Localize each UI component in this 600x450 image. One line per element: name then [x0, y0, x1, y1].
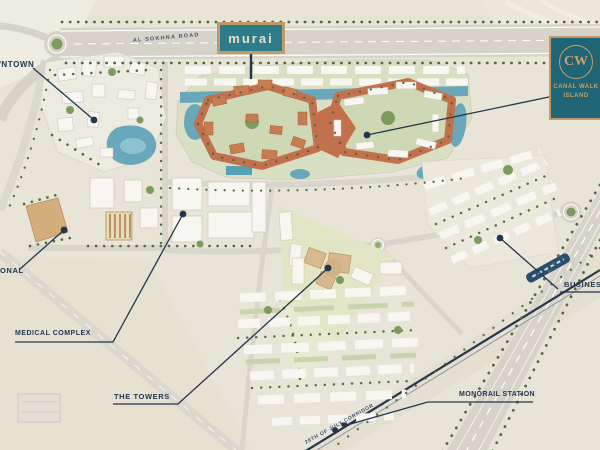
callout-label-downtown: DOWNTOWN: [0, 60, 34, 69]
masterplan-image: AL SOKHNA ROAD 26TH OF JULY CORRIDOR DOW…: [0, 0, 600, 450]
masterplan-map: AL SOKHNA ROAD 26TH OF JULY CORRIDOR: [0, 0, 600, 450]
utility-building: [18, 394, 60, 422]
callout-label-educational: ONAL: [0, 266, 24, 275]
callout-label-monorail-station: MONORAIL STATION: [459, 391, 535, 398]
murai-sign-text: murai: [228, 31, 273, 46]
murai-sign: murai: [217, 22, 285, 54]
callout-label-the-towers: THE TOWERS: [114, 392, 170, 401]
canal-walk-island-logo: CW CANAL WALK ISLAND: [549, 36, 600, 120]
callout-label-medical-complex: MEDICAL COMPLEX: [15, 330, 91, 337]
cw-monogram-icon: CW: [559, 45, 593, 79]
logo-name-line2: ISLAND: [551, 92, 600, 101]
callout-label-business: BUSINESS: [564, 280, 600, 289]
logo-name-line1: CANAL WALK: [551, 83, 600, 92]
pool: [226, 166, 252, 175]
